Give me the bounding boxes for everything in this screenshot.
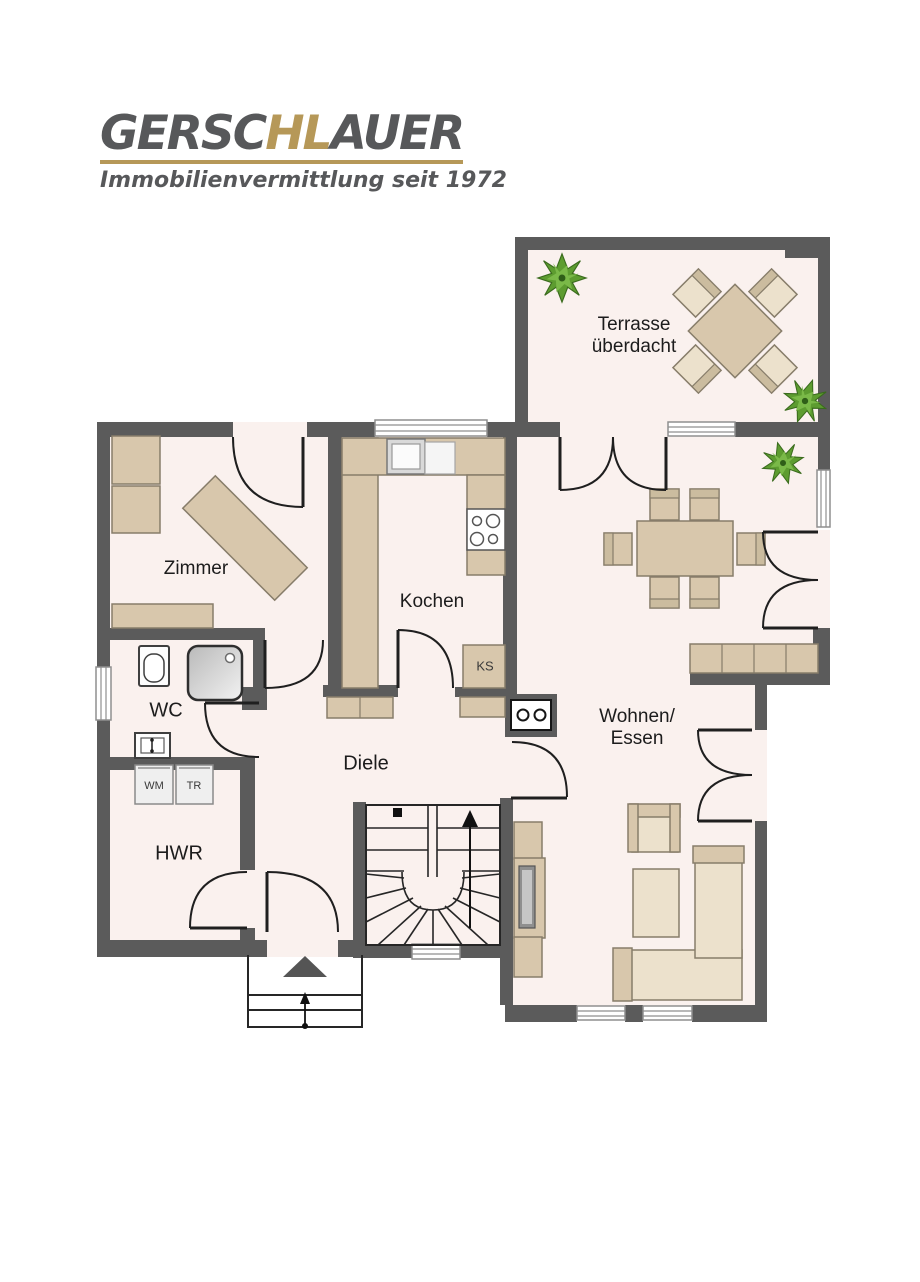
garden-door-threshold [818, 530, 830, 628]
living-bottom-window-2 [643, 1006, 692, 1020]
label-terrace-line1: Terrasse [592, 314, 677, 336]
label-ks: KS [476, 659, 493, 674]
chimney-symbol [511, 700, 551, 730]
entry-threshold [265, 930, 340, 957]
dining-right-window [817, 470, 830, 527]
zimmer-couch [112, 436, 160, 533]
dining-sideboard [690, 644, 818, 673]
label-tr: TR [187, 780, 202, 792]
label-wohnen-essen: Wohnen/ Essen [599, 706, 675, 750]
plant-terrace-1 [538, 254, 586, 302]
stair-window [412, 944, 460, 959]
label-terrace-line2: überdacht [592, 336, 677, 358]
label-diele: Diele [343, 753, 389, 776]
entrance-arrow-marker [283, 956, 327, 977]
zimmer-sideboard [112, 604, 213, 628]
coffee-table [633, 869, 679, 937]
terrace-set [673, 269, 797, 393]
floorplan-drawing [0, 0, 920, 1282]
wc-sink [135, 733, 170, 758]
label-wohnen-line2: Essen [599, 728, 675, 750]
label-wc: WC [149, 700, 182, 723]
label-kochen: Kochen [400, 591, 464, 613]
armchair [628, 804, 680, 852]
kitchen-dishwasher [425, 442, 455, 474]
kitchen-sink [387, 439, 425, 474]
wc-window [96, 667, 111, 720]
kitchen-stove [467, 509, 505, 550]
living-bottom-window-1 [577, 1006, 625, 1020]
label-wohnen-line1: Wohnen/ [599, 706, 675, 728]
label-terrace: Terrasse überdacht [592, 314, 677, 358]
tv-board [514, 822, 545, 977]
entrance-steps [248, 955, 362, 1029]
toilet [139, 646, 169, 686]
kitchen-window [375, 420, 487, 436]
stair-start-marker [393, 808, 402, 817]
dining-top-window [668, 422, 735, 436]
label-zimmer: Zimmer [164, 558, 228, 580]
label-hwr: HWR [155, 843, 203, 866]
label-wm: WM [144, 780, 164, 792]
shower [188, 646, 242, 700]
floorplan-page: GERSCHLAUER Immobilienvermittlung seit 1… [0, 0, 920, 1282]
dining-table [637, 521, 733, 576]
